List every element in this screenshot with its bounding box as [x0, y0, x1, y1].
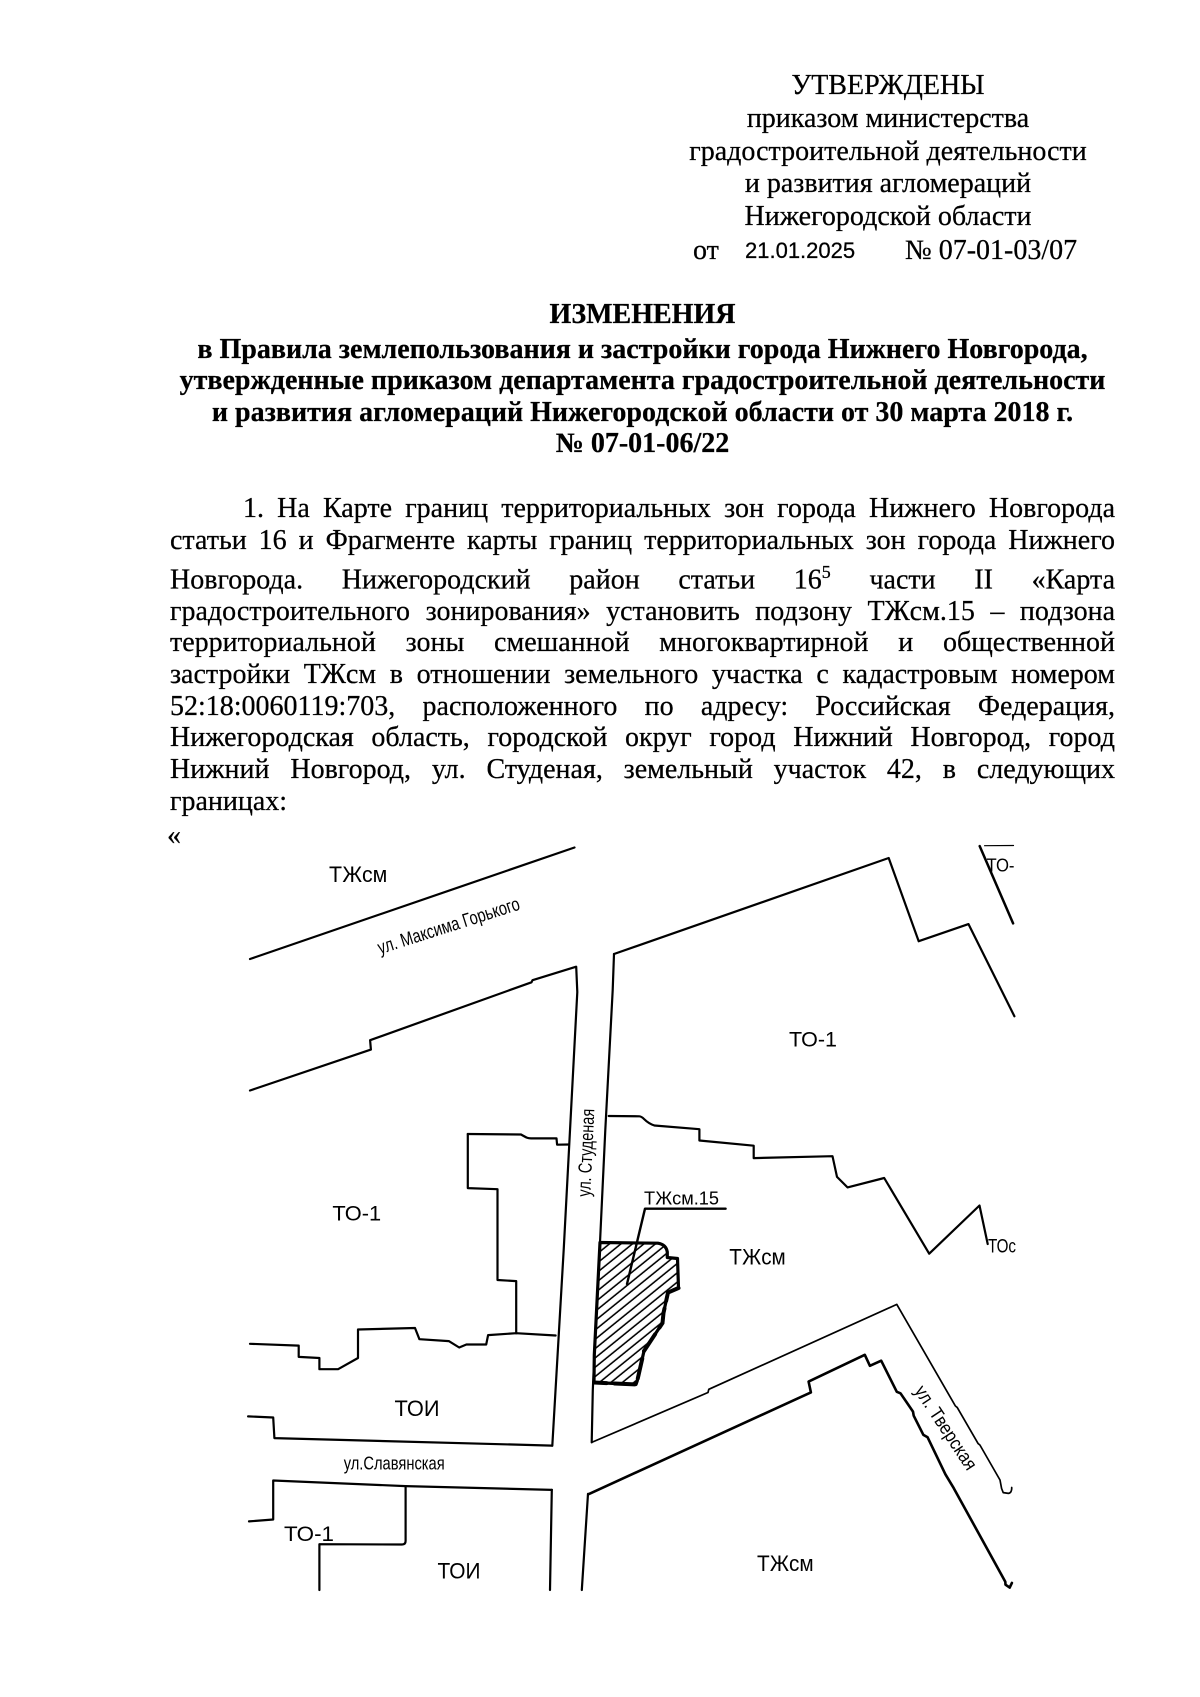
svg-text:ул.Славянская: ул.Славянская: [344, 1454, 445, 1474]
svg-text:ТОИ: ТОИ: [438, 1559, 481, 1584]
svg-text:ТО-1: ТО-1: [789, 1028, 837, 1052]
svg-text:ТО-1: ТО-1: [332, 1202, 381, 1226]
svg-text:ТОс: ТОс: [988, 1237, 1016, 1258]
svg-text:ТЖсм.15: ТЖсм.15: [644, 1188, 719, 1209]
svg-text:ТО-1: ТО-1: [284, 1523, 334, 1546]
svg-text:ТО-: ТО-: [987, 856, 1015, 876]
svg-text:ул. Студеная: ул. Студеная: [574, 1108, 599, 1197]
svg-text:ТЖсм: ТЖсм: [729, 1244, 785, 1269]
svg-text:ул. Максима Горького: ул. Максима Горького: [375, 894, 522, 959]
svg-text:ТЖсм: ТЖсм: [757, 1551, 814, 1576]
svg-text:ТЖсм: ТЖсм: [329, 862, 387, 887]
svg-text:ТОИ: ТОИ: [395, 1396, 440, 1421]
